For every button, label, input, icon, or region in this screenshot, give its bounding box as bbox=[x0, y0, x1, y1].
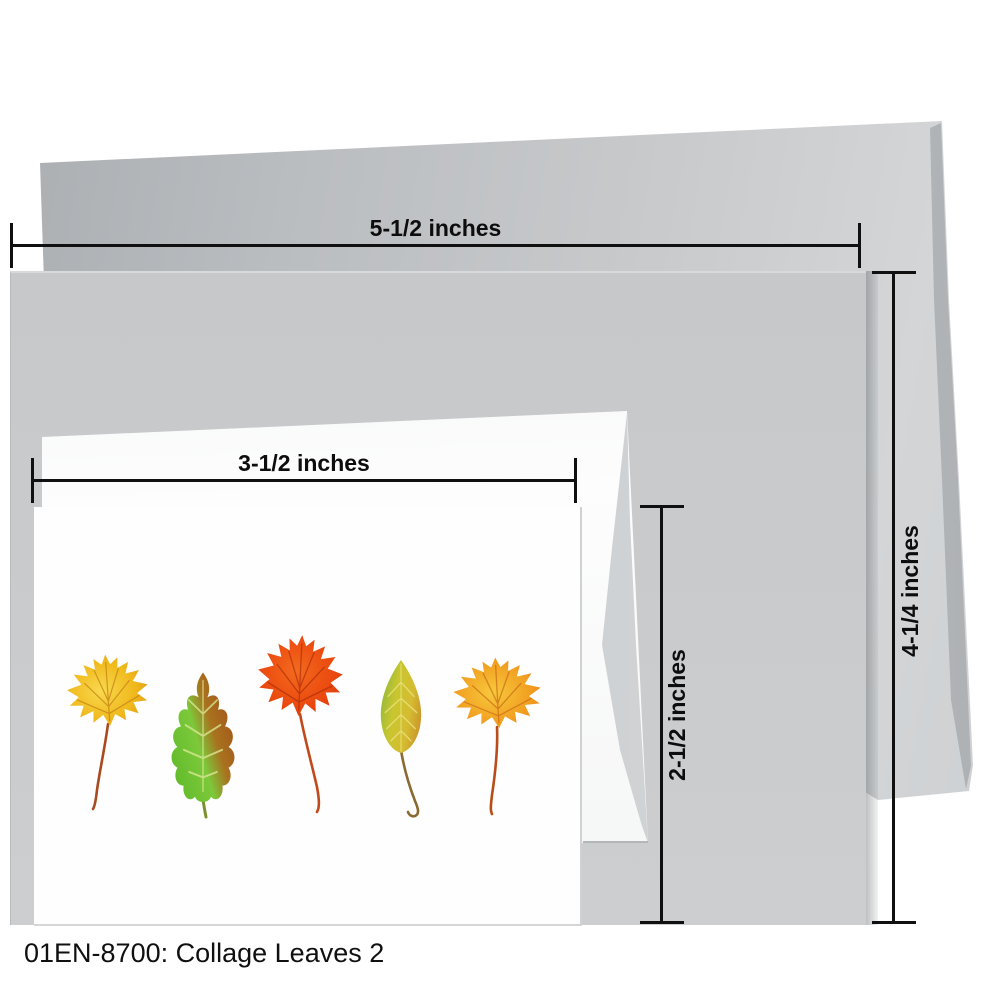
small-envelope-bottom-edge bbox=[583, 841, 648, 843]
card-width-measure: 3-1/2 inches bbox=[31, 458, 577, 503]
measure-line bbox=[31, 479, 577, 482]
leaf-collage-artwork bbox=[34, 507, 582, 926]
maple-leaf-yellow bbox=[65, 652, 151, 809]
product-preview: 5-1/2 inches 3-1/2 inches 2-1/2 inches 4… bbox=[0, 0, 984, 984]
measure-line bbox=[892, 271, 895, 924]
card-height-label: 2-1/2 inches bbox=[664, 649, 691, 781]
oak-leaf-green-brown bbox=[172, 673, 235, 817]
envelope-height-measure: 4-1/4 inches bbox=[872, 271, 916, 924]
card-height-measure: 2-1/2 inches bbox=[640, 505, 684, 924]
maple-leaf-orange bbox=[452, 656, 543, 814]
birch-leaf-yellow-green bbox=[381, 660, 421, 816]
measure-line bbox=[660, 505, 663, 924]
measure-line bbox=[10, 244, 861, 247]
card-width-label: 3-1/2 inches bbox=[238, 450, 370, 477]
envelope-width-measure: 5-1/2 inches bbox=[10, 223, 861, 268]
envelope-width-label: 5-1/2 inches bbox=[370, 215, 502, 242]
envelope-height-label: 4-1/4 inches bbox=[897, 525, 924, 657]
product-caption: 01EN-8700: Collage Leaves 2 bbox=[24, 938, 384, 969]
maple-leaf-red-orange bbox=[256, 633, 344, 812]
